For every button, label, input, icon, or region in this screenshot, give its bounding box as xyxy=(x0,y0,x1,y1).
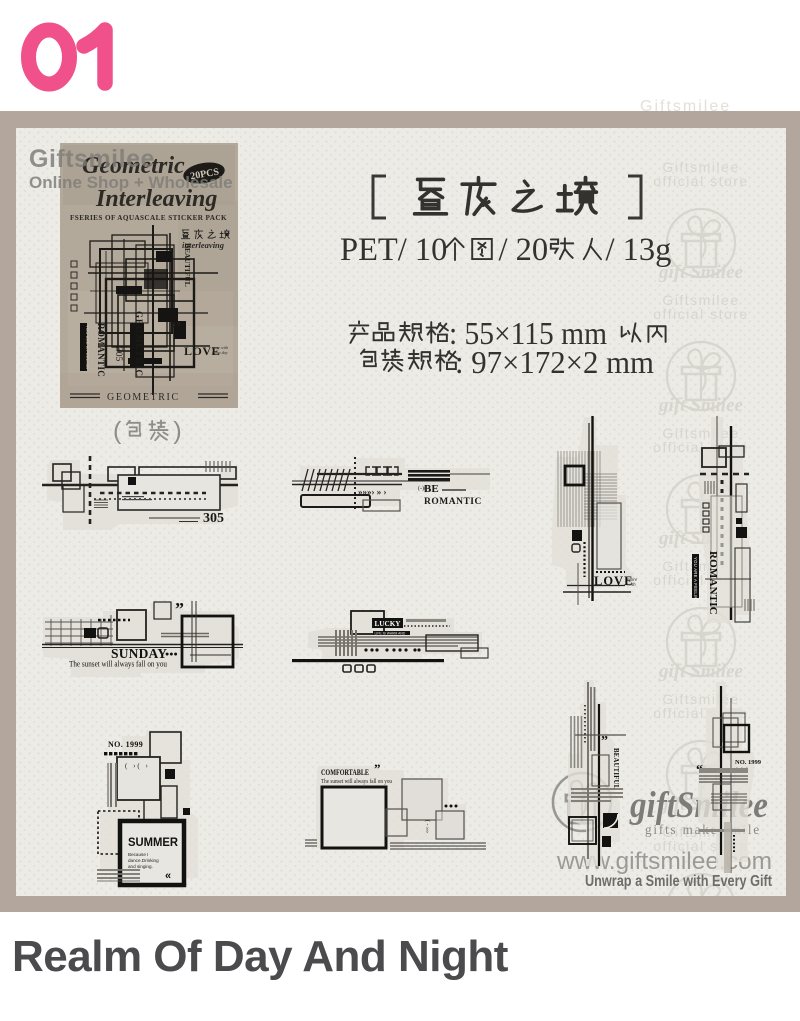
svg-text:BE: BE xyxy=(424,483,439,495)
svg-text:NO. 1999: NO. 1999 xyxy=(108,740,143,749)
svg-text:PET/ 10: PET/ 10 xyxy=(340,232,447,268)
svg-text:/ 13g: / 13g xyxy=(606,232,672,268)
svg-text:NO. 1999: NO. 1999 xyxy=(735,759,762,766)
svg-text:COMFORTABLE: COMFORTABLE xyxy=(321,768,369,777)
svg-text:«: « xyxy=(165,870,171,882)
svg-text:”: ” xyxy=(171,318,181,340)
svg-text:( ›( ›: ( ›( › xyxy=(125,762,150,770)
svg-text:YOU ARE A FEELING: YOU ARE A FEELING xyxy=(85,325,90,369)
svg-text:”: ” xyxy=(374,761,381,776)
svg-text:and singing.: and singing. xyxy=(128,864,153,869)
svg-text:●●●: ●●● xyxy=(165,650,178,658)
svg-text:dance.Drinking: dance.Drinking xyxy=(128,858,159,863)
svg-text:305: 305 xyxy=(113,347,123,362)
svg-text:ROMANTIC: ROMANTIC xyxy=(707,551,719,615)
svg-text:Unwrap a Smile with Every Gift: Unwrap a Smile with Every Gift xyxy=(585,873,772,890)
svg-text:GEOMETRIC: GEOMETRIC xyxy=(107,392,180,403)
svg-text:SUMMER: SUMMER xyxy=(128,837,179,849)
svg-text:LUCKY: LUCKY xyxy=(375,619,402,628)
svg-text:”: ” xyxy=(601,734,608,749)
svg-text:with: with xyxy=(627,583,636,588)
svg-text:BEAUTIFUL: BEAUTIFUL xyxy=(183,243,192,287)
svg-text:ROMANTIC: ROMANTIC xyxy=(424,497,482,507)
svg-text:: 97×172×2 mm: : 97×172×2 mm xyxy=(455,345,654,378)
svg-text:/ 20: / 20 xyxy=(499,232,549,268)
svg-text:LIFE IS WARM AND: LIFE IS WARM AND xyxy=(375,632,406,636)
svg-text:Because I: Because I xyxy=(128,852,148,857)
svg-text:YOU ARE A FEELING: YOU ARE A FEELING xyxy=(693,557,698,603)
svg-text:gift Smilee: gift Smilee xyxy=(658,395,743,416)
svg-text:The sunset will always fall on: The sunset will always fall on you xyxy=(321,778,393,785)
svg-text:ROMANTIC: ROMANTIC xyxy=(96,323,106,377)
svg-text:( - ›››: ( - ››› xyxy=(424,820,431,833)
svg-text:FSERIES OF AQUASCALE STICKER P: FSERIES OF AQUASCALE STICKER PACK xyxy=(70,214,227,222)
svg-text:BEAUTIFUL: BEAUTIFUL xyxy=(612,748,619,790)
svg-text:The sunset will always fall on: The sunset will always fall on you xyxy=(69,659,168,669)
svg-text:305: 305 xyxy=(203,511,224,526)
svg-text:every day: every day xyxy=(212,350,228,355)
svg-text:GEOMETRIC: GEOMETRIC xyxy=(134,311,144,377)
